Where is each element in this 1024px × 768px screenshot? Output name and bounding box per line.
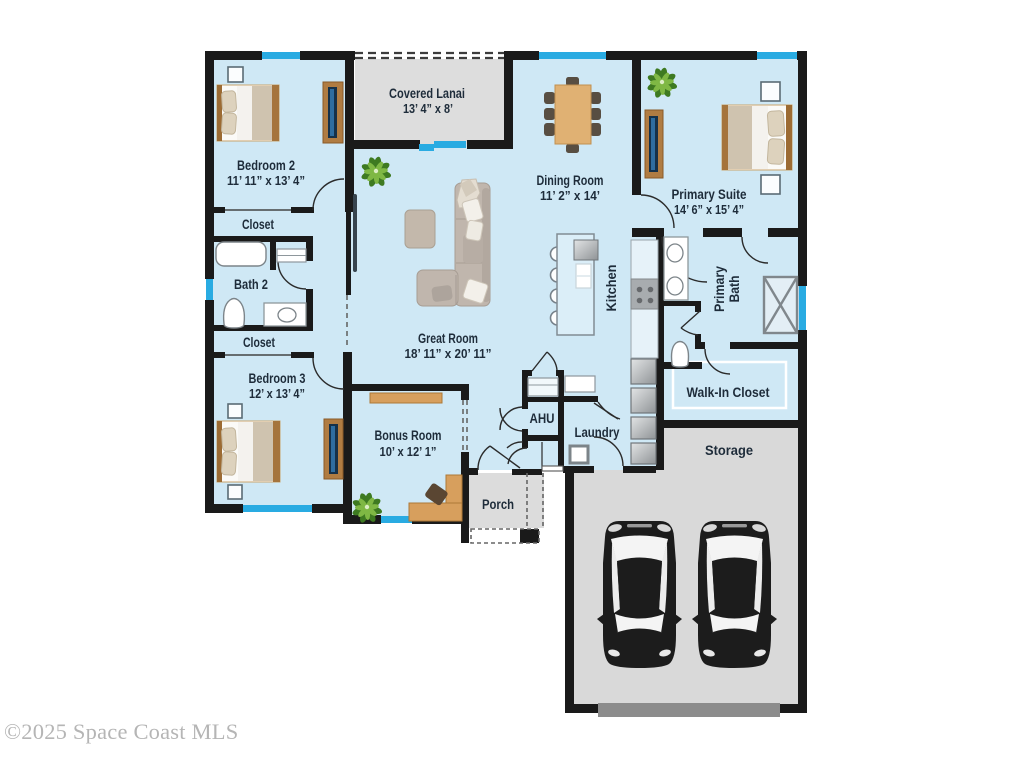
svg-text:Walk-In Closet: Walk-In Closet [687, 385, 770, 400]
svg-text:Covered Lanai: Covered Lanai [389, 86, 465, 101]
svg-text:14’ 6” x 15’ 4”: 14’ 6” x 15’ 4” [674, 202, 744, 217]
svg-text:Bath: Bath [727, 276, 742, 303]
svg-text:Dining Room: Dining Room [537, 173, 604, 188]
svg-text:Bedroom 3: Bedroom 3 [249, 371, 306, 386]
svg-text:Bath 2: Bath 2 [234, 277, 268, 292]
svg-text:13’ 4” x 8’: 13’ 4” x 8’ [403, 101, 453, 116]
svg-text:Primary: Primary [712, 266, 727, 312]
svg-text:11’ 2” x 14’: 11’ 2” x 14’ [540, 188, 600, 203]
svg-text:Primary Suite: Primary Suite [672, 187, 747, 202]
svg-text:11’ 11” x 13’ 4”: 11’ 11” x 13’ 4” [227, 173, 305, 188]
svg-text:Bonus Room: Bonus Room [375, 428, 442, 443]
svg-text:©2025 Space Coast MLS: ©2025 Space Coast MLS [4, 719, 238, 744]
svg-text:Great Room: Great Room [418, 331, 478, 346]
svg-text:Bedroom 2: Bedroom 2 [237, 158, 295, 173]
svg-text:Closet: Closet [243, 335, 275, 350]
svg-text:Porch: Porch [482, 497, 514, 512]
svg-text:10’ x 12’ 1”: 10’ x 12’ 1” [380, 444, 437, 459]
svg-text:12’ x 13’ 4”: 12’ x 13’ 4” [249, 386, 305, 401]
svg-text:Kitchen: Kitchen [604, 265, 619, 312]
svg-text:18’ 11” x 20’ 11”: 18’ 11” x 20’ 11” [405, 346, 492, 361]
svg-text:Laundry: Laundry [575, 425, 620, 440]
svg-text:AHU: AHU [530, 411, 555, 426]
svg-text:Storage: Storage [705, 443, 753, 458]
svg-text:Closet: Closet [242, 217, 274, 232]
